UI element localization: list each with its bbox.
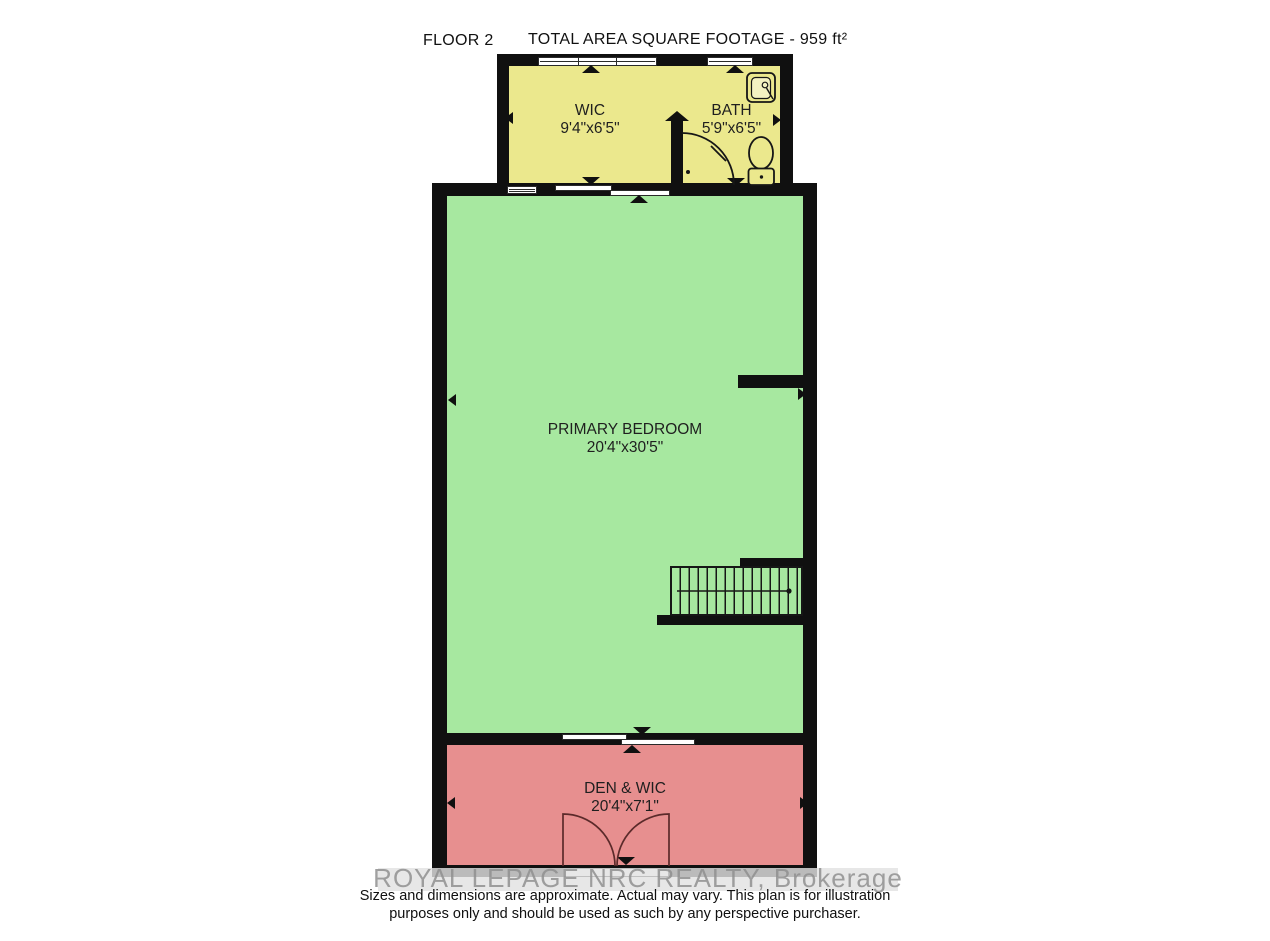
direction-arrow-icon xyxy=(798,388,806,400)
floor-title: FLOOR 2 xyxy=(423,32,494,50)
room-name: PRIMARY BEDROOM xyxy=(447,421,803,439)
window-glass-line xyxy=(540,61,655,62)
label-bath: BATH 5'9"x6'5" xyxy=(683,102,780,138)
floor-plan-canvas: FLOOR 2 TOTAL AREA SQUARE FOOTAGE - 959 … xyxy=(0,0,1270,941)
room-dims: 20'4"x7'1" xyxy=(447,798,803,816)
room-dims: 5'9"x6'5" xyxy=(683,120,780,138)
room-primary-bedroom-floor xyxy=(447,196,803,733)
label-den-wic: DEN & WIC 20'4"x7'1" xyxy=(447,780,803,816)
direction-arrow-icon xyxy=(726,65,744,73)
label-primary-bedroom: PRIMARY BEDROOM 20'4"x30'5" xyxy=(447,421,803,457)
bedroom-partition-wall xyxy=(738,375,817,388)
room-name: BATH xyxy=(683,102,780,120)
total-area-title: TOTAL AREA SQUARE FOOTAGE - 959 ft² xyxy=(528,31,847,49)
wic-bath-divider-wall xyxy=(671,120,683,196)
direction-arrow-icon xyxy=(582,65,600,73)
window-wic-bottom xyxy=(507,186,537,194)
room-name: WIC xyxy=(509,102,671,120)
direction-arrow-icon xyxy=(623,745,641,753)
room-dims: 20'4"x30'5" xyxy=(447,439,803,457)
direction-arrow-icon xyxy=(582,177,600,185)
stairs-icon xyxy=(670,566,803,616)
room-dims: 9'4"x6'5" xyxy=(509,120,671,138)
direction-arrow-icon xyxy=(727,178,745,186)
window-glass-line xyxy=(709,61,751,62)
direction-arrow-icon xyxy=(448,394,456,406)
window-glass-line xyxy=(509,189,535,190)
sliding-door-den-panel xyxy=(562,734,627,740)
sliding-door-wic-panel xyxy=(555,185,612,191)
disclaimer-line-2: purposes only and should be used as such… xyxy=(0,905,1250,923)
direction-arrow-icon xyxy=(633,727,651,735)
direction-arrow-icon xyxy=(630,195,648,203)
disclaimer: Sizes and dimensions are approximate. Ac… xyxy=(0,887,1250,923)
window-glass-line xyxy=(509,191,535,192)
label-wic: WIC 9'4"x6'5" xyxy=(509,102,671,138)
room-name: DEN & WIC xyxy=(447,780,803,798)
disclaimer-line-1: Sizes and dimensions are approximate. Ac… xyxy=(0,887,1250,905)
stair-lower-wall xyxy=(657,615,817,625)
